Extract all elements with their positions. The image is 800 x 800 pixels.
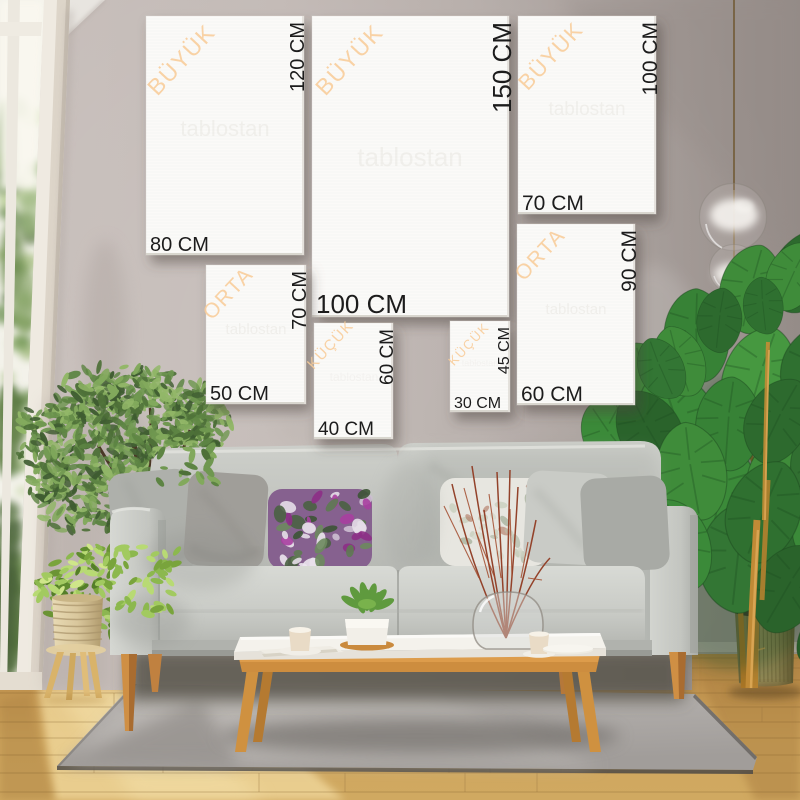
svg-text:tablostan: tablostan [330, 370, 379, 384]
svg-text:80 CM: 80 CM [150, 234, 209, 256]
svg-text:tablostan: tablostan [546, 301, 607, 318]
svg-text:tablostan: tablostan [548, 99, 625, 120]
svg-text:150 CM: 150 CM [487, 22, 517, 113]
svg-text:45 CM: 45 CM [496, 327, 513, 374]
svg-text:100 CM: 100 CM [316, 289, 407, 319]
svg-text:70 CM: 70 CM [522, 192, 584, 215]
svg-text:70 CM: 70 CM [289, 271, 311, 330]
svg-text:tablostan: tablostan [357, 142, 463, 172]
svg-text:tablostan: tablostan [180, 116, 269, 141]
svg-text:90 CM: 90 CM [618, 230, 641, 292]
svg-text:tablostan: tablostan [226, 321, 287, 338]
svg-text:60 CM: 60 CM [377, 329, 398, 385]
svg-text:50 CM: 50 CM [210, 383, 269, 405]
svg-text:120 CM: 120 CM [287, 22, 309, 92]
svg-text:60 CM: 60 CM [521, 383, 583, 406]
svg-text:tablostan: tablostan [462, 358, 499, 368]
svg-text:100 CM: 100 CM [639, 22, 662, 96]
svg-text:30 CM: 30 CM [454, 395, 501, 412]
svg-text:40 CM: 40 CM [318, 419, 374, 440]
